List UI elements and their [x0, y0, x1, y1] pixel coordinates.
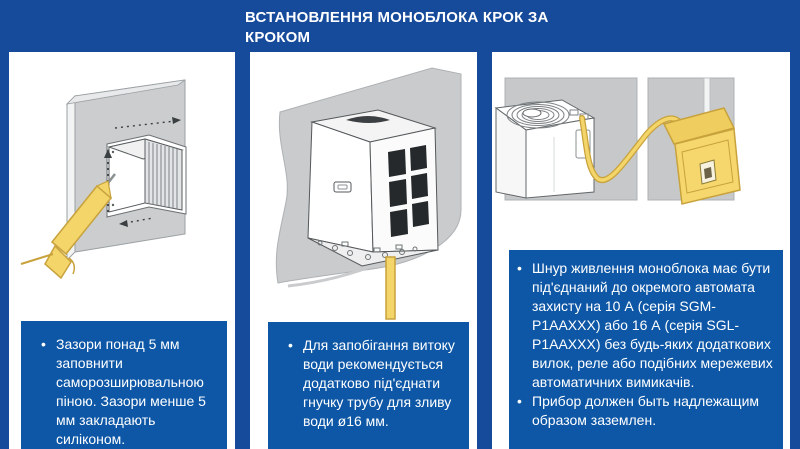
monoblock-unit-graphic [308, 110, 438, 266]
bullet-marker: • [517, 259, 532, 392]
list-item: • Зазори понад 5 мм заповнити саморозшир… [41, 335, 221, 449]
drain-tube-icon [386, 257, 395, 319]
bullet-marker: • [288, 336, 303, 431]
step1-illustration-wall-sealant [9, 52, 235, 321]
list-item: • Прибор должен быть надлежащим образом … [517, 392, 777, 430]
note-text: Прибор должен быть надлежащим образом за… [532, 392, 777, 430]
note-text: Шнур живлення моноблока має бути під'єдн… [532, 259, 777, 392]
note-box-step1: • Зазори понад 5 мм заповнити саморозшир… [21, 321, 227, 449]
note-box-step3: • Шнур живлення моноблока має бути під'є… [509, 250, 783, 449]
note-box-step2: • Для запобігання витоку води рекомендує… [268, 322, 469, 449]
page-title: ВСТАНОВЛЕННЯ МОНОБЛОКА КРОК ЗА КРОКОМ [245, 8, 585, 48]
outdoor-unit-graphic [496, 100, 594, 198]
bullet-marker: • [517, 392, 532, 430]
step-panel-1: • Зазори понад 5 мм заповнити саморозшир… [9, 52, 235, 449]
step-panel-2: • Для запобігання витоку води рекомендує… [250, 52, 477, 449]
step2-illustration-drain-tube [250, 52, 477, 322]
step3-illustration-power-connection [492, 52, 790, 252]
bullet-marker: • [41, 335, 56, 449]
inserted-unit-graphic [107, 135, 186, 217]
list-item: • Для запобігання витоку води рекомендує… [288, 336, 463, 431]
step-panel-3: • Шнур живлення моноблока має бути під'є… [492, 52, 790, 449]
note-text: Зазори понад 5 мм заповнити саморозширюв… [56, 335, 221, 449]
note-text: Для запобігання витоку води рекомендуєть… [303, 336, 463, 431]
list-item: • Шнур живлення моноблока має бути під'є… [517, 259, 777, 392]
